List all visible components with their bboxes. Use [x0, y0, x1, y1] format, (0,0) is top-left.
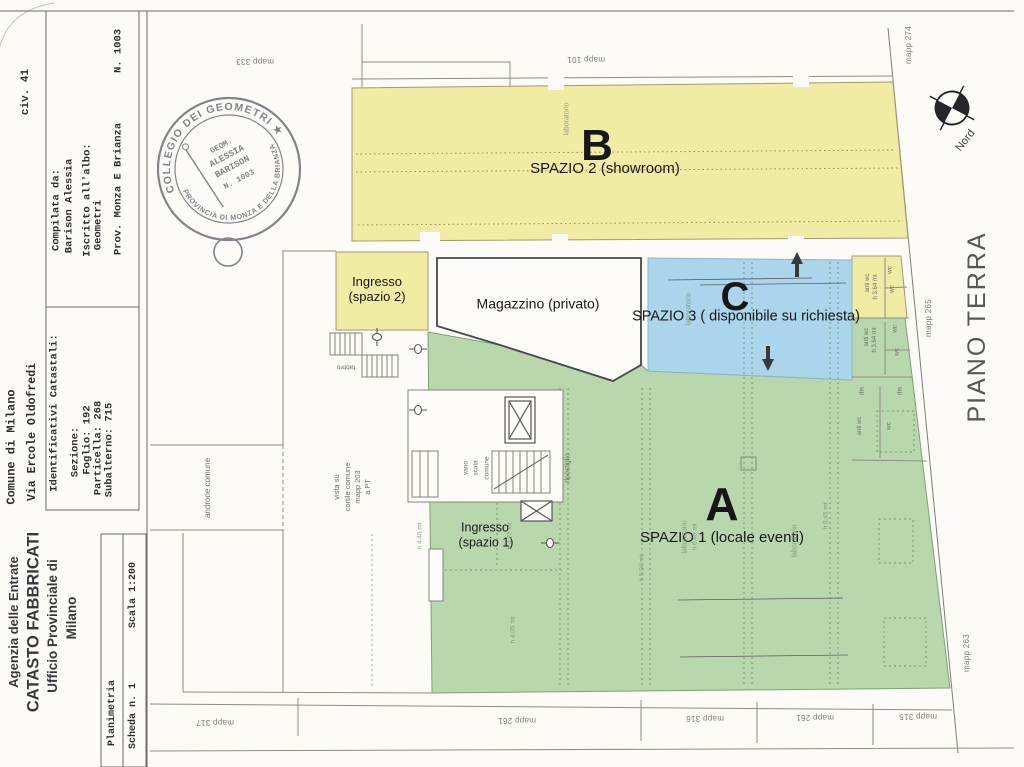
mapp-333: mapp 333	[236, 57, 274, 65]
zone-a-name: SPAZIO 1 (locale eventi)	[640, 530, 804, 546]
zone-a-shape	[428, 318, 950, 693]
wc-yellow-1: wc	[888, 266, 895, 274]
laboratorio-b: laboratorio	[563, 102, 570, 135]
mapp-263: mapp 263	[963, 634, 971, 672]
ingresso1-label-line1: Ingresso	[461, 521, 509, 534]
agency-line-4: Milano	[65, 597, 79, 640]
laboratorio-c: laboratorio	[685, 292, 692, 325]
vano-scala-line-1: vano	[464, 461, 471, 475]
mapp-274: mapp 274	[905, 26, 913, 64]
mapp-261b: mapp 261	[796, 713, 834, 721]
zone-a-letter: A	[705, 480, 738, 528]
vano-scala-line-3: comune	[485, 456, 492, 479]
floor-label: PIANO TERRA	[964, 231, 990, 422]
mapp-261: mapp 261	[498, 716, 536, 724]
mapp-316: mapp 316	[686, 714, 724, 722]
cortile-line-3: mapp 203	[354, 470, 362, 503]
mapp-101: mapp 101	[567, 55, 605, 63]
cortile-line-1: vista su	[333, 474, 341, 499]
sheet-scheda: Scheda n. 1	[129, 683, 140, 749]
cadastral-plan-page: COLLEGIO DEI GEOMETRI ★ PROVINCIA DI MON…	[0, 0, 1024, 767]
cadastral-sezione: Sezione:	[70, 427, 81, 477]
compiler-register: Geometri	[93, 200, 104, 250]
anti-wc-yellow: anti wc	[865, 274, 871, 293]
h645-a2: h 6.45 mt	[824, 502, 831, 529]
mapp-315: mapp 315	[899, 712, 937, 720]
ingresso1-label-line2: (spazio 1)	[459, 536, 514, 549]
anti-wc-green: anti wc	[864, 328, 870, 347]
h645-a1: h 6.45 mt	[693, 523, 700, 550]
stamp-tail	[214, 238, 242, 266]
anti-wc-green-2: anti wc	[857, 417, 863, 436]
dis-label-2: dis	[898, 387, 905, 395]
compiler-province: Prov. Monza E Brianza	[113, 123, 124, 255]
dis-label-1: dis	[860, 387, 867, 395]
h437-label: h 4.37 mt	[508, 522, 515, 549]
cortile-line-2: cortile comune	[344, 463, 352, 512]
agency-line-3: Ufficio Provinciale di	[46, 559, 60, 693]
magazzino-label: Magazzino (privato)	[477, 297, 600, 312]
cadastral-title: Identificativi Catastali:	[49, 334, 60, 492]
wc-green-3: wc	[887, 422, 894, 430]
ripostiglio-label: ripostiglio	[564, 453, 571, 483]
zone-b-name: SPAZIO 2 (showroom)	[530, 161, 680, 177]
plan-drawing: COLLEGIO DEI GEOMETRI ★ PROVINCIA DI MON…	[0, 0, 1024, 767]
h405-label: h 4.05 mt	[511, 616, 518, 643]
civ-label: civ. 41	[21, 69, 33, 115]
h504-label: h 5.04 mt	[640, 554, 647, 581]
via-label: Via Ercole Oldofredi	[27, 363, 39, 501]
compass-icon	[918, 74, 986, 142]
vano-scala-line-2: scala	[474, 460, 481, 475]
agency-line-1: Agenzia delle Entrate	[7, 556, 21, 687]
laboratorio-a2: laboratorio	[791, 524, 798, 557]
compiler-title: Compilata da:	[51, 169, 62, 251]
h364-green: h 3.64 mt	[872, 327, 878, 352]
laboratorio-a1: laboratorio	[681, 520, 688, 553]
wc-green-1: wc	[893, 325, 900, 333]
ingresso2-label-line2: (spazio 2)	[348, 290, 405, 304]
h446-label: h 4.46 mt	[418, 522, 425, 549]
stamp: COLLEGIO DEI GEOMETRI ★ PROVINCIA DI MON…	[133, 73, 325, 266]
compiler-name: Barison Alessia	[64, 159, 75, 254]
fabbro-label: fabbro	[337, 363, 355, 370]
agency-line-2: CATASTO FABBRICATI	[25, 532, 42, 712]
androne-label: androne comune	[204, 458, 212, 518]
wc-green-2: wc	[895, 348, 902, 356]
cadastral-subalterno: Subalterno: 715	[104, 403, 115, 498]
wc-yellow-2: wc	[890, 285, 897, 293]
compiler-number: N. 1003	[113, 29, 124, 73]
cortile-line-4: a PT	[364, 479, 372, 495]
sheet-type: Planimetria	[108, 680, 119, 746]
ingresso2-label-line1: Ingresso	[352, 275, 402, 289]
comune-label: Comune di Milano	[6, 389, 19, 504]
mapp-317: mapp 317	[196, 718, 234, 726]
mapp-265: mapp 265	[925, 299, 933, 337]
h364-yellow: h 3.64 mt	[873, 274, 879, 299]
sheet-scala: Scala 1:200	[129, 562, 140, 628]
zone-c-name: SPAZIO 3 ( disponibile su richiesta)	[632, 309, 860, 324]
